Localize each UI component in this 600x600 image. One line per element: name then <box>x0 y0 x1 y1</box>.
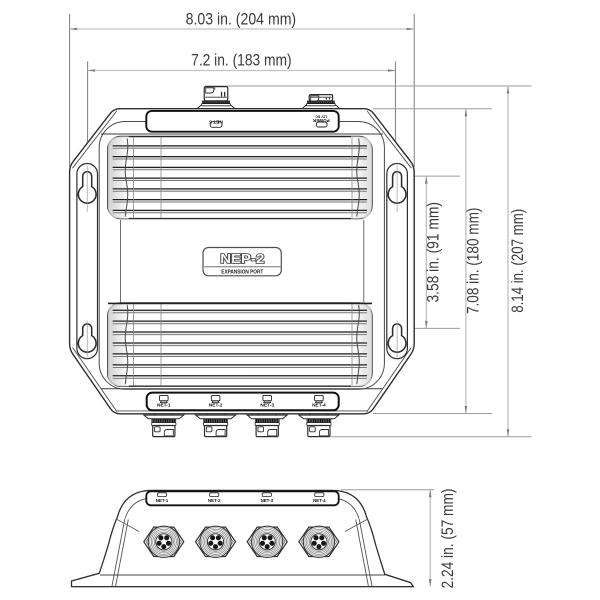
svg-text:8.03 in. (204 mm): 8.03 in. (204 mm) <box>186 10 297 29</box>
svg-text:2.24 in. (57 mm): 2.24 in. (57 mm) <box>439 489 457 589</box>
svg-text:NET-4: NET-4 <box>312 403 326 409</box>
svg-text:NET-1: NET-1 <box>156 498 169 503</box>
svg-text:7.2 in. (183 mm): 7.2 in. (183 mm) <box>191 51 292 70</box>
svg-text:NET-2: NET-2 <box>209 403 223 409</box>
svg-text:8.14 in. (207 mm): 8.14 in. (207 mm) <box>509 209 527 313</box>
svg-text:12V DC: 12V DC <box>315 114 327 118</box>
svg-text:NET-2: NET-2 <box>208 498 221 503</box>
svg-text:NET-3: NET-3 <box>260 403 274 409</box>
svg-text:7.08 in. (180 mm): 7.08 in. (180 mm) <box>465 208 483 315</box>
svg-text:NEP-2: NEP-2 <box>220 252 264 266</box>
svg-text:NET-1: NET-1 <box>157 403 171 409</box>
svg-text:NET-4: NET-4 <box>313 498 326 503</box>
svg-text:EXPANSION PORT: EXPANSION PORT <box>221 269 264 275</box>
svg-text:NET-3: NET-3 <box>261 498 274 503</box>
svg-text:3.58 in. (91 mm): 3.58 in. (91 mm) <box>425 202 443 302</box>
